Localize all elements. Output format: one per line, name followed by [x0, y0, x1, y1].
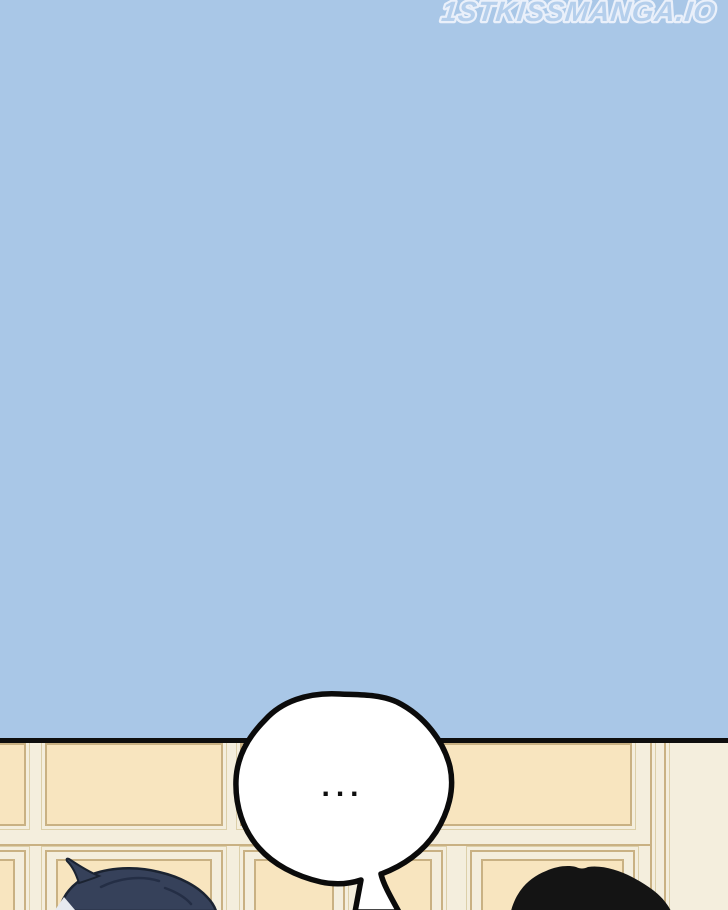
- right-character-hair: [511, 866, 671, 910]
- speech-bubble-text: ...: [314, 770, 372, 806]
- wall-panel-upper-2: [45, 743, 223, 826]
- wall-panel-lower-1: [0, 850, 26, 910]
- wall-panel-inset: [0, 859, 15, 910]
- manga-page: 1STKISSMANGA.IO ...: [0, 0, 728, 910]
- site-watermark: 1STKISSMANGA.IO: [366, 0, 726, 35]
- wall-panel-upper-1: [0, 743, 26, 826]
- right-character-head: [505, 862, 677, 910]
- left-character-head: [45, 845, 223, 910]
- site-watermark-text: 1STKISSMANGA.IO: [440, 0, 718, 27]
- sky-background: [0, 0, 728, 738]
